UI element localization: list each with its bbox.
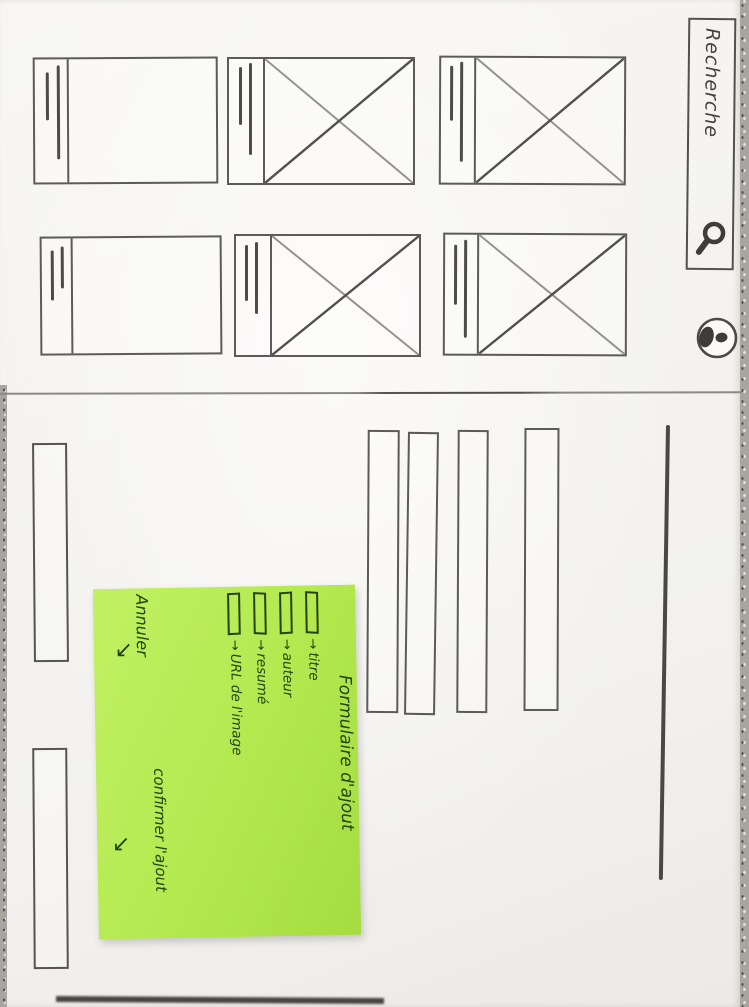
card-item[interactable] [439,56,626,186]
card-body-empty [69,59,217,183]
side-placeholder [32,443,69,662]
photo-of-paper-wireframe: Recherche Formulaire d'ajout → titre [0,0,749,1007]
form-field-titre[interactable]: → titre [301,591,325,680]
text-line-placeholder [460,62,463,162]
input-box-placeholder[interactable] [306,591,320,634]
card-text-placeholder [229,59,265,183]
text-line-placeholder [57,65,60,159]
text-line-placeholder [46,72,49,120]
card-body-empty [73,237,221,353]
text-line-placeholder [245,245,248,301]
search-label: Recherche [700,20,723,138]
field-label: auteur [279,653,296,698]
card-text-placeholder [445,235,479,354]
list-bar-placeholder [524,428,560,711]
card-item[interactable] [443,233,627,357]
list-bar-placeholder [366,430,399,713]
magnifier-icon[interactable] [693,218,729,260]
list-bar-placeholder [456,430,488,713]
text-line-placeholder [450,66,453,121]
list-bar-placeholder [404,432,439,715]
table-surface-edge [0,385,7,1007]
image-placeholder-icon [476,58,624,184]
card-item[interactable] [227,57,415,185]
form-field-url-image[interactable]: → URL de l'image [223,593,248,756]
card-item[interactable] [40,235,223,355]
text-line-placeholder [51,251,54,301]
field-arrow-icon: → [279,639,294,650]
side-placeholder [32,748,69,969]
field-label: resumé [253,653,270,704]
form-field-resume[interactable]: → resumé [249,592,273,704]
input-box-placeholder[interactable] [228,593,242,636]
image-placeholder-icon [265,59,413,183]
text-line-placeholder [464,240,467,338]
field-arrow-icon: → [253,639,268,650]
input-box-placeholder[interactable] [254,592,268,635]
sticky-note: Formulaire d'ajout → titre → auteur → re… [93,585,361,940]
confirm-button[interactable]: confirmer l'ajout [150,768,170,892]
image-placeholder-icon [479,235,625,355]
confirm-arrow-icon: ↘ [109,835,131,854]
card-text-placeholder [35,59,70,182]
text-line-placeholder [255,242,258,314]
cancel-arrow-icon: ↘ [112,641,134,660]
panda-avatar-icon[interactable] [694,316,740,362]
card-text-placeholder [42,238,74,353]
field-label: URL de l'image [227,654,245,756]
form-field-auteur[interactable]: → auteur [275,592,299,698]
card-item[interactable] [33,57,219,185]
form-title: Formulaire d'ajout [334,675,357,831]
text-line-placeholder [239,67,242,125]
card-text-placeholder [441,58,476,183]
image-placeholder-icon [272,236,419,355]
field-arrow-icon: → [305,638,320,649]
text-line-placeholder [454,245,457,305]
search-field[interactable]: Recherche [686,18,737,270]
card-text-placeholder [236,236,272,355]
input-box-placeholder[interactable] [280,591,294,634]
field-label: titre [305,652,321,680]
text-line-placeholder [249,63,252,155]
card-item[interactable] [234,234,421,357]
field-arrow-icon: → [227,640,242,651]
text-line-placeholder [61,246,64,288]
